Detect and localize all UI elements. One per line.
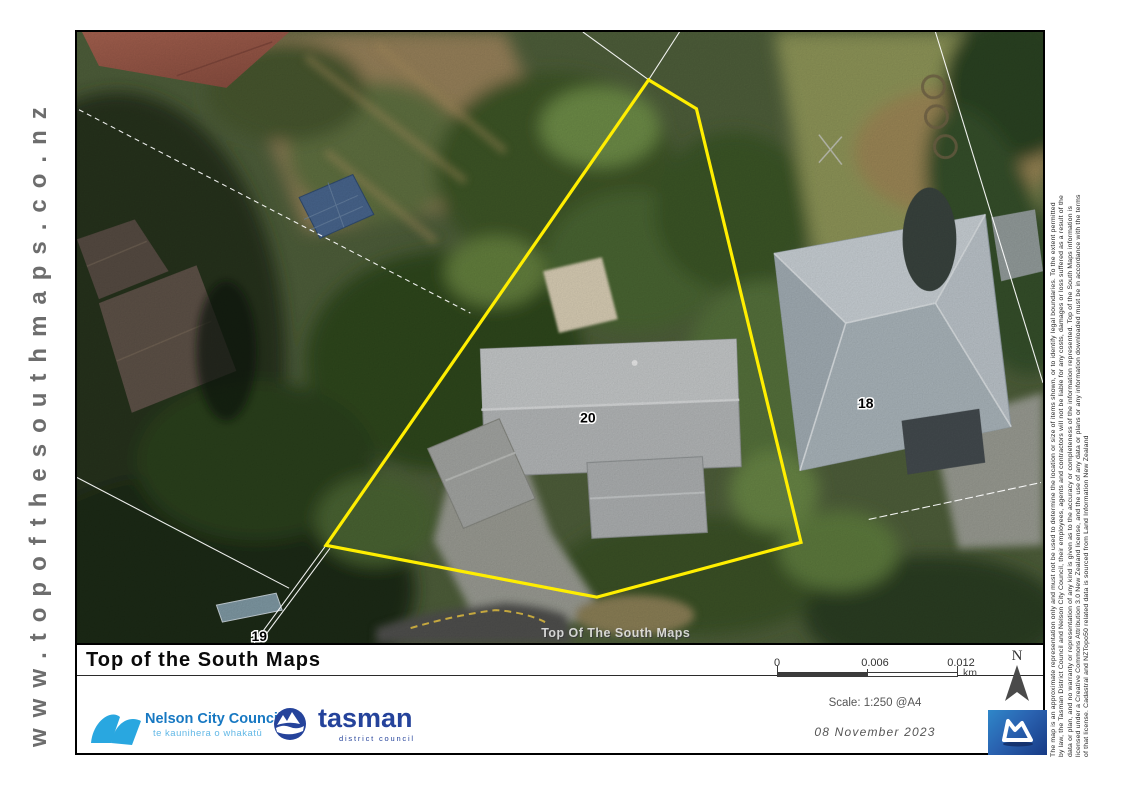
nelson-logo-maori-name: te kaunihera o whakatū bbox=[153, 728, 262, 739]
nelson-logo-name: Nelson City Council bbox=[145, 711, 282, 727]
tasman-logo-subtitle: district council bbox=[339, 734, 415, 743]
disclaimer-line: data or plan, and no warranty or represe… bbox=[1067, 27, 1075, 757]
tasman-district-council-logo: tasman district council bbox=[273, 707, 423, 749]
north-arrow-icon bbox=[1005, 665, 1029, 703]
tasman-mountain-icon bbox=[273, 707, 313, 743]
scale-bar-fill bbox=[778, 673, 868, 676]
disclaimer-line: of that license. Cadastral and NZTopo50 … bbox=[1083, 27, 1091, 757]
page-title: Top of the South Maps bbox=[86, 649, 321, 672]
scale-unit-label: km bbox=[963, 667, 977, 679]
scale-bar bbox=[777, 672, 958, 677]
scale-tick-label: 0.006 bbox=[839, 657, 911, 669]
aerial-photo: 20 18 19 Top Of The South Maps bbox=[77, 32, 1043, 643]
disclaimer-line: by law, the Tasman District Council and … bbox=[1058, 27, 1066, 757]
map-watermark: Top Of The South Maps bbox=[541, 626, 690, 640]
disclaimer-line: licensed under a Creative Commons Attrib… bbox=[1075, 27, 1083, 757]
mountain-logo-icon bbox=[988, 710, 1047, 755]
website-watermark: www.topofthesouthmaps.co.nz bbox=[16, 41, 62, 747]
north-indicator: N bbox=[1001, 648, 1033, 706]
scale-bar-group: 0 0.006 0.012 km Scale: 1:250 @A4 08 Nov… bbox=[777, 645, 973, 755]
parcel-label-18: 18 bbox=[858, 395, 874, 411]
parcel-label-20: 20 bbox=[580, 410, 596, 426]
north-label: N bbox=[1001, 648, 1033, 665]
scale-bar-labels: 0 0.006 0.012 bbox=[763, 657, 987, 669]
disclaimer-line: The map is an approximate representation… bbox=[1050, 27, 1058, 757]
nelson-swoosh-icon bbox=[89, 707, 143, 745]
top-of-the-south-logo bbox=[988, 710, 1047, 755]
map-footer: Top of the South Maps Nelson City Counci… bbox=[75, 643, 1045, 755]
scale-tick-label: 0.012 bbox=[936, 657, 986, 669]
map-export-page: www.topofthesouthmaps.co.nz The map is a… bbox=[0, 0, 1122, 794]
map-canvas: 20 18 19 Top Of The South Maps bbox=[75, 30, 1045, 643]
tasman-logo-name: tasman bbox=[318, 703, 413, 734]
print-date: 08 November 2023 bbox=[767, 725, 983, 739]
disclaimer-text: The map is an approximate representation… bbox=[1050, 27, 1092, 757]
scale-ratio-text: Scale: 1:250 @A4 bbox=[777, 697, 973, 709]
parcel-label-19: 19 bbox=[251, 628, 267, 643]
